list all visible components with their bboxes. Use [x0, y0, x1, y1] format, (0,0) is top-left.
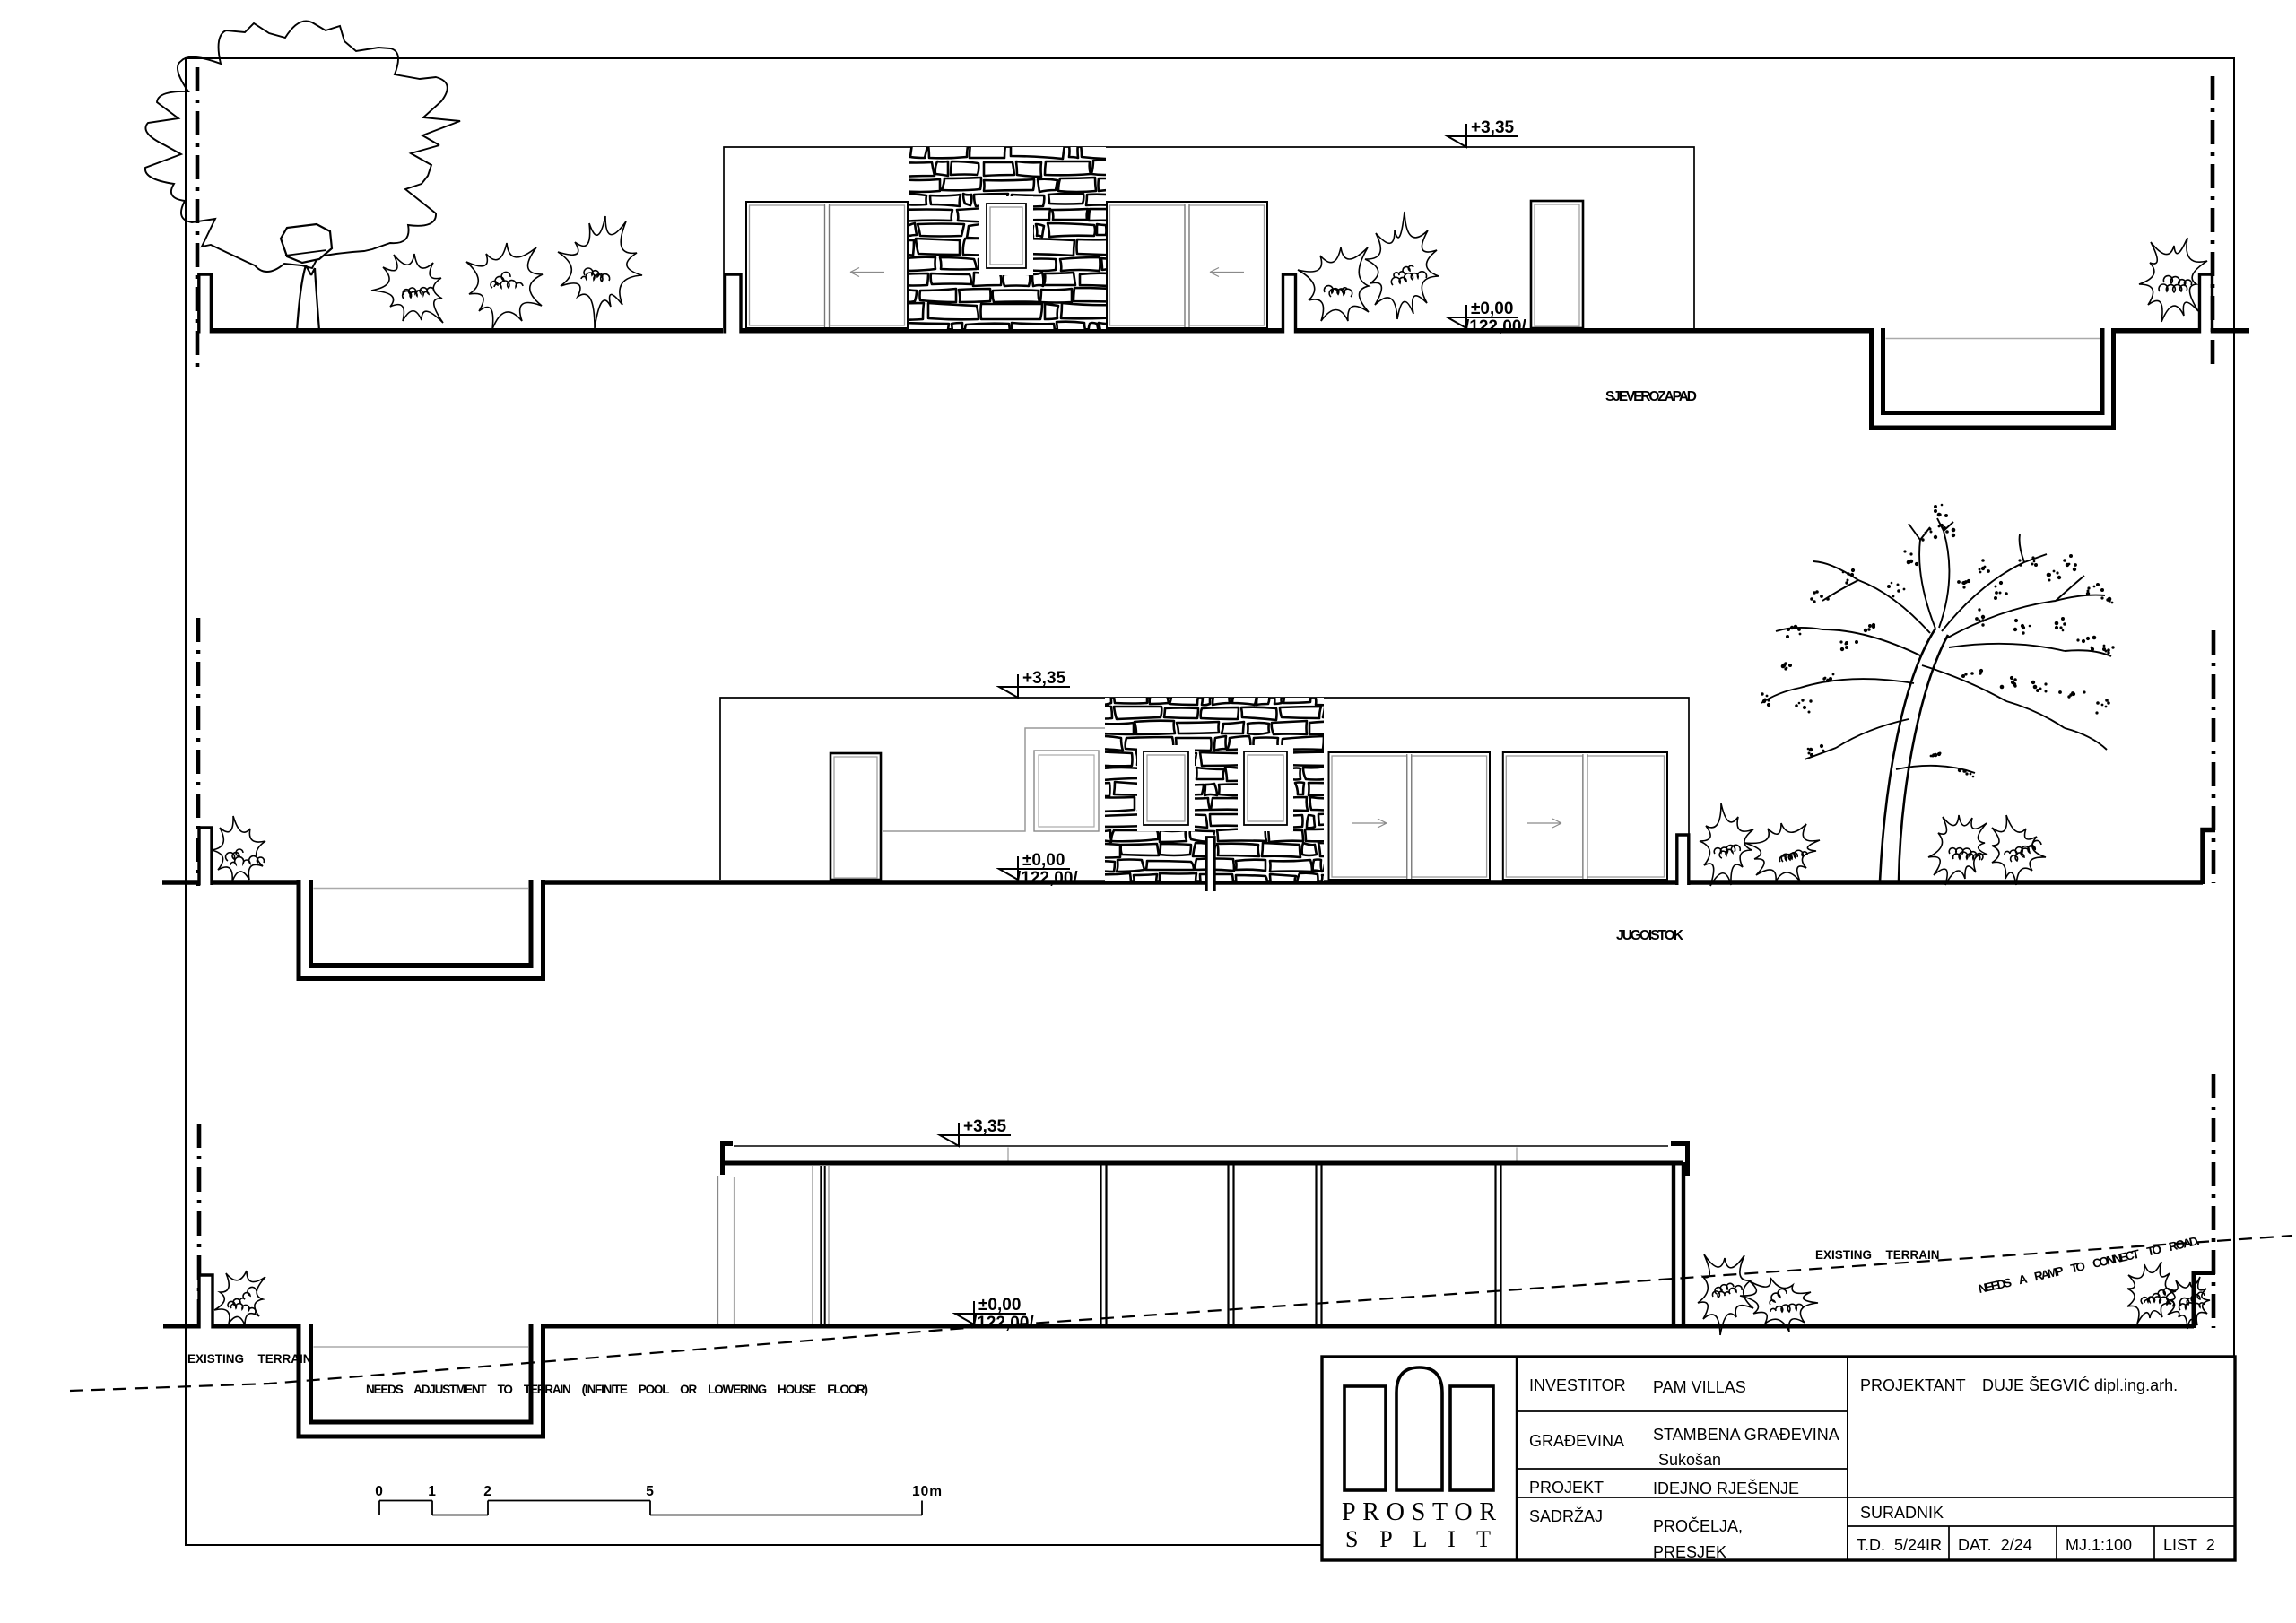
svg-text:1: 1 — [428, 1484, 437, 1499]
svg-text:GRAĐEVINA: GRAĐEVINA — [1529, 1432, 1624, 1450]
svg-text:2: 2 — [483, 1484, 492, 1499]
svg-text:±0,00: ±0,00 — [1471, 299, 1513, 318]
svg-text:EXISTING TERRAIN: EXISTING TERRAIN — [1815, 1248, 1940, 1262]
svg-text:+3,35: +3,35 — [1471, 118, 1515, 137]
svg-text:SADRŽAJ: SADRŽAJ — [1529, 1507, 1603, 1525]
svg-text:/122,00/: /122,00/ — [1465, 317, 1526, 336]
svg-text:+3,35: +3,35 — [1022, 669, 1066, 688]
svg-text:±0,00: ±0,00 — [1022, 851, 1065, 870]
svg-text:/122,00/: /122,00/ — [1016, 869, 1078, 888]
svg-text:PAM VILLAS: PAM VILLAS — [1653, 1378, 1746, 1396]
svg-text:SJEVEROZAPAD: SJEVEROZAPAD — [1605, 389, 1698, 404]
svg-text:JUGOISTOK: JUGOISTOK — [1616, 928, 1684, 943]
svg-text:DAT. 2/24: DAT. 2/24 — [1958, 1536, 2032, 1554]
svg-text:IDEJNO RJEŠENJE: IDEJNO RJEŠENJE — [1653, 1479, 1799, 1497]
svg-text:EXISTING TERRAIN: EXISTING TERRAIN — [187, 1352, 312, 1366]
svg-text:10m: 10m — [912, 1484, 943, 1499]
svg-text:PROJEKTANT: PROJEKTANT — [1860, 1376, 1966, 1394]
svg-text:INVESTITOR: INVESTITOR — [1529, 1376, 1626, 1394]
svg-text:NEEDS ADJUSTMENT TO TERRAIN: NEEDS ADJUSTMENT TO TERRAIN (INFINITE PO… — [366, 1383, 868, 1396]
svg-text:PROJEKT: PROJEKT — [1529, 1479, 1604, 1497]
svg-text:SURADNIK: SURADNIK — [1860, 1504, 1944, 1522]
svg-text:T.D. 5/24IR: T.D. 5/24IR — [1857, 1536, 1942, 1554]
svg-text:0: 0 — [375, 1484, 384, 1499]
svg-text:LIST 2: LIST 2 — [2163, 1536, 2215, 1554]
svg-text:PRESJEK: PRESJEK — [1653, 1543, 1726, 1561]
svg-text:STAMBENA GRAĐEVINA: STAMBENA GRAĐEVINA — [1653, 1426, 1839, 1444]
svg-text:PROČELJA,: PROČELJA, — [1653, 1516, 1743, 1535]
svg-text:MJ.1:100: MJ.1:100 — [2066, 1536, 2132, 1554]
svg-text:/122,00/: /122,00/ — [972, 1314, 1034, 1332]
svg-text:±0,00: ±0,00 — [978, 1296, 1021, 1315]
svg-text:Sukošan: Sukošan — [1658, 1451, 1721, 1469]
svg-text:DUJE ŠEGVIĆ dipl.ing.arh.: DUJE ŠEGVIĆ dipl.ing.arh. — [1982, 1376, 2178, 1394]
svg-text:5: 5 — [646, 1484, 655, 1499]
svg-text:+3,35: +3,35 — [963, 1117, 1007, 1136]
